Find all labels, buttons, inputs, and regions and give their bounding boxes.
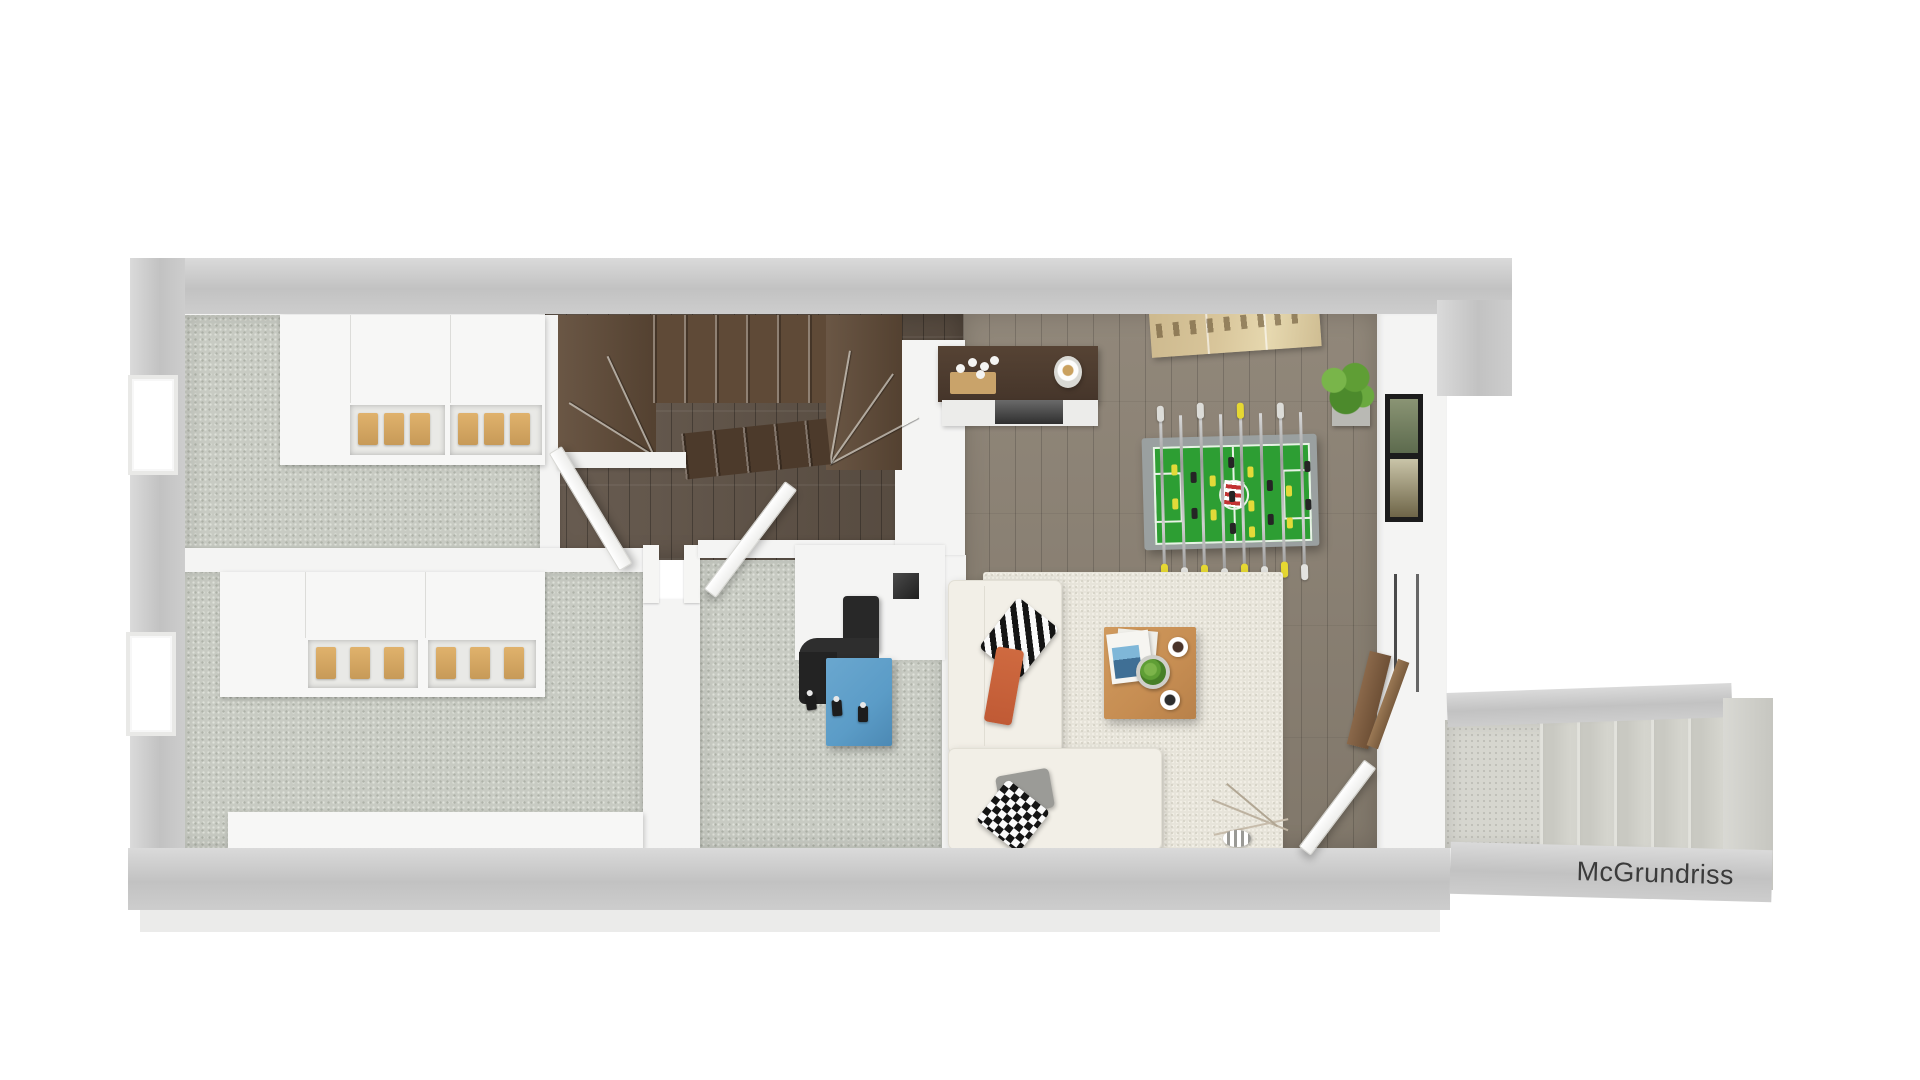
cup — [1168, 637, 1188, 657]
foosball-players-yellow — [1171, 464, 1177, 475]
picture-frame — [1385, 394, 1423, 458]
folded-linen — [358, 413, 378, 445]
foosball-center-logo — [1223, 482, 1241, 506]
sideboard-inset — [995, 400, 1063, 424]
folded-linen — [384, 647, 404, 679]
sofa-seam — [984, 586, 985, 746]
foosball-players-black — [1190, 472, 1196, 483]
floor-plan-render: McGrundriss — [0, 0, 1920, 1080]
stairs-upper-run — [653, 315, 830, 403]
branch-twig — [1226, 783, 1278, 827]
tap — [831, 700, 842, 717]
wardrobe-open-shelf — [428, 640, 536, 688]
folded-linen — [504, 647, 524, 679]
glass-door-rail — [1416, 574, 1419, 692]
candle — [956, 364, 965, 373]
candle-tray — [950, 372, 996, 394]
window — [128, 375, 178, 475]
annex-stair-tread — [1540, 720, 1577, 848]
stair-skirt-wall — [558, 452, 686, 468]
annex-stair-tread — [1577, 718, 1614, 850]
cup — [1160, 690, 1180, 710]
foosball-handle — [1277, 403, 1284, 419]
wall-roomB-roomC — [643, 600, 700, 848]
folded-linen — [316, 647, 336, 679]
stairs-winder-turn — [826, 315, 902, 470]
foosball-table — [1142, 434, 1320, 551]
outer-wall-bottom-face — [140, 910, 1440, 932]
outer-wall-bottom — [128, 848, 1450, 910]
folded-linen — [458, 413, 478, 445]
tap — [858, 706, 868, 722]
folded-linen — [484, 413, 504, 445]
wardrobe-top-left — [280, 315, 545, 465]
decor-bowl — [1223, 830, 1251, 847]
folded-linen — [350, 647, 370, 679]
wardrobe-bottom-left — [220, 572, 545, 697]
foosball-handle — [1197, 403, 1204, 419]
watermark-label: McGrundriss — [1449, 842, 1772, 902]
potted-plant — [1316, 360, 1378, 428]
folded-linen — [510, 413, 530, 445]
wall-roomA-roomB — [150, 548, 648, 572]
folded-linen — [384, 413, 404, 445]
foosball-handle — [1301, 564, 1308, 580]
foosball-goal-box — [1282, 469, 1311, 520]
folded-linen — [410, 413, 430, 445]
long-counter — [228, 812, 643, 850]
stairs-upper-landing — [558, 315, 656, 465]
foosball-handle — [1157, 406, 1164, 422]
annex-stair-tread — [1651, 714, 1688, 852]
picture-frame — [1385, 454, 1423, 522]
wardrobe-open-shelf — [350, 405, 445, 455]
annex-stair-tread — [1688, 712, 1728, 854]
foosball-handle-yellow — [1237, 403, 1244, 419]
outer-wall-left — [130, 258, 185, 873]
sofa-bench — [948, 748, 1162, 850]
plant-foliage — [1316, 360, 1376, 418]
tap — [805, 693, 817, 710]
wardrobe-open-shelf — [450, 405, 542, 455]
annex-wall-bottom: McGrundriss — [1449, 842, 1772, 902]
outer-wall-top-right-corner — [1437, 300, 1512, 396]
foosball-field — [1153, 443, 1313, 545]
wardrobe-open-shelf — [308, 640, 418, 688]
wardrobe-door-seam — [350, 315, 351, 403]
folded-linen — [436, 647, 456, 679]
foosball-goal-box — [1153, 472, 1182, 523]
outer-wall-top — [130, 258, 1512, 314]
vase — [1054, 356, 1082, 388]
folded-linen — [470, 647, 490, 679]
annex-stair-tread — [1614, 716, 1651, 850]
door-jamb — [643, 545, 659, 603]
table-plant-foliage — [1140, 659, 1166, 685]
decor-branches — [1205, 790, 1297, 854]
wardrobe-door-seam — [450, 315, 451, 403]
window — [126, 632, 176, 736]
chimney-vent — [893, 573, 919, 599]
wardrobe-door-seam — [425, 572, 426, 638]
wardrobe-door-seam — [305, 572, 306, 638]
